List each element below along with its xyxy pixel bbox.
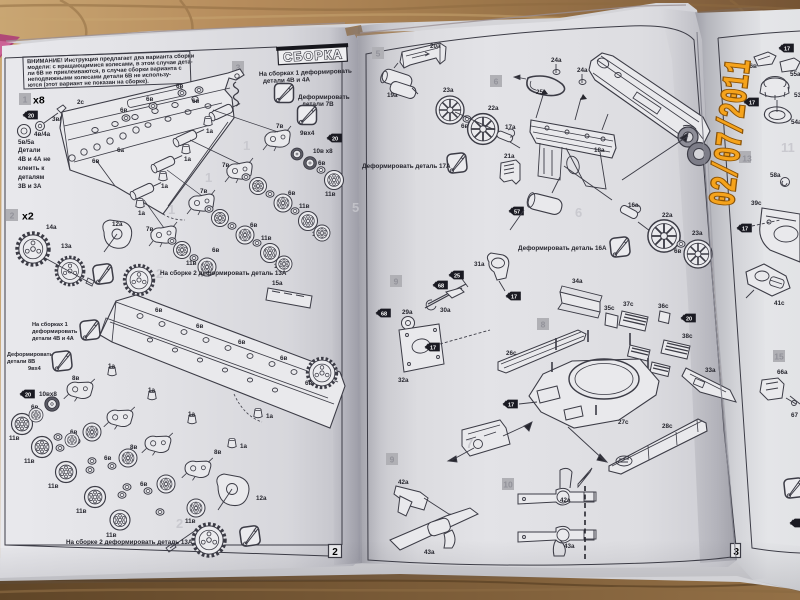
svg-text:15а: 15а (272, 280, 283, 287)
svg-text:20а: 20а (430, 43, 441, 50)
svg-text:4В и 4А не: 4В и 4А не (18, 156, 51, 163)
svg-text:11в: 11в (186, 260, 197, 267)
svg-text:2: 2 (10, 211, 15, 221)
svg-text:1а: 1а (108, 363, 116, 370)
svg-text:13а: 13а (61, 243, 72, 250)
svg-text:32а: 32а (398, 377, 409, 384)
svg-text:57: 57 (514, 210, 520, 216)
svg-text:15: 15 (774, 352, 784, 362)
svg-text:1а: 1а (148, 387, 156, 394)
svg-text:68: 68 (381, 312, 387, 318)
svg-text:42а: 42а (398, 479, 409, 486)
svg-text:1: 1 (205, 170, 212, 185)
svg-text:1а: 1а (240, 443, 248, 450)
svg-text:На сборках 1: На сборках 1 (32, 321, 68, 328)
svg-text:53: 53 (794, 92, 800, 99)
svg-text:17а: 17а (505, 124, 516, 131)
svg-text:12а: 12а (256, 495, 267, 502)
svg-text:43а: 43а (424, 549, 435, 556)
svg-text:6в: 6в (92, 158, 100, 165)
svg-text:2: 2 (332, 547, 338, 558)
svg-text:10: 10 (503, 480, 513, 490)
svg-text:6: 6 (494, 77, 499, 87)
svg-text:66а: 66а (777, 369, 788, 376)
svg-text:x8: x8 (33, 95, 45, 107)
svg-text:11в: 11в (261, 235, 272, 242)
svg-text:6в: 6в (196, 323, 204, 330)
svg-text:6в: 6в (238, 339, 246, 346)
svg-text:33а: 33а (705, 367, 716, 374)
svg-text:1: 1 (168, 202, 175, 217)
svg-text:детали 4В и 4А: детали 4В и 4А (32, 336, 74, 342)
svg-text:6в: 6в (192, 98, 200, 105)
svg-text:6в: 6в (250, 222, 258, 229)
svg-text:22а: 22а (662, 212, 673, 219)
svg-text:Детали: Детали (18, 147, 41, 154)
svg-text:19а: 19а (387, 92, 398, 99)
svg-text:38с: 38с (682, 333, 693, 340)
svg-text:11в: 11в (48, 483, 59, 490)
svg-text:6в: 6в (155, 307, 163, 314)
svg-text:11в: 11в (76, 508, 87, 515)
svg-text:11в: 11в (106, 532, 117, 539)
svg-text:6в: 6в (104, 455, 112, 462)
svg-text:9: 9 (390, 455, 395, 465)
svg-text:1а: 1а (188, 411, 196, 418)
svg-text:23а: 23а (443, 87, 454, 94)
svg-text:43а: 43а (564, 543, 575, 550)
svg-text:11в: 11в (299, 203, 310, 210)
svg-text:18а: 18а (594, 147, 605, 154)
svg-text:2: 2 (176, 516, 183, 531)
svg-text:58а: 58а (770, 172, 781, 179)
svg-text:6в: 6в (674, 248, 682, 255)
svg-text:12а: 12а (112, 221, 123, 228)
svg-text:6в: 6в (280, 355, 288, 362)
svg-text:2с: 2с (77, 99, 85, 106)
svg-text:24а: 24а (551, 57, 562, 64)
svg-text:7в: 7в (222, 162, 230, 169)
svg-text:Деформировать: Деформировать (298, 94, 350, 101)
svg-text:11в: 11в (24, 458, 35, 465)
svg-text:26с: 26с (506, 350, 517, 357)
svg-text:35с: 35с (604, 305, 615, 312)
svg-text:8в: 8в (214, 449, 222, 456)
svg-text:36с: 36с (658, 303, 669, 310)
svg-text:67: 67 (791, 412, 799, 419)
svg-text:29а: 29а (402, 309, 413, 316)
svg-text:20: 20 (25, 393, 31, 399)
svg-text:8: 8 (541, 320, 546, 330)
svg-text:6в: 6в (140, 481, 148, 488)
svg-text:55а: 55а (790, 71, 800, 78)
svg-text:20: 20 (28, 114, 34, 120)
svg-text:9вх4: 9вх4 (28, 366, 42, 372)
svg-text:детали 8В: детали 8В (7, 359, 35, 365)
svg-text:23а: 23а (692, 230, 703, 237)
svg-text:5: 5 (376, 49, 381, 59)
svg-text:17: 17 (508, 403, 514, 409)
svg-text:7в: 7в (200, 188, 208, 195)
svg-text:7в: 7в (146, 226, 154, 233)
svg-text:1а: 1а (161, 183, 169, 190)
svg-text:11в: 11в (185, 518, 196, 525)
svg-text:24а: 24а (577, 67, 588, 74)
svg-text:деталям: деталям (18, 174, 45, 181)
svg-text:11: 11 (781, 140, 795, 155)
svg-text:x2: x2 (22, 211, 34, 223)
svg-text:41с: 41с (774, 300, 785, 307)
svg-text:6а: 6а (117, 147, 125, 154)
svg-text:1а: 1а (206, 128, 214, 135)
svg-text:1: 1 (23, 95, 28, 105)
svg-text:11в: 11в (9, 435, 20, 442)
svg-text:5: 5 (352, 200, 359, 215)
svg-text:20: 20 (686, 317, 692, 323)
svg-text:Деформировать деталь 17А: Деформировать деталь 17А (362, 163, 451, 170)
svg-text:клеить к: клеить к (18, 165, 45, 172)
svg-text:68: 68 (438, 284, 444, 290)
svg-text:6в: 6в (318, 160, 326, 167)
svg-text:27с: 27с (618, 419, 629, 426)
svg-text:20: 20 (332, 137, 338, 143)
svg-text:На сборке 2 деформировать дета: На сборке 2 деформировать деталь 13А (66, 538, 193, 546)
svg-text:21а: 21а (504, 153, 515, 160)
svg-text:6в: 6в (212, 247, 220, 254)
svg-text:Деформировать деталь 16А: Деформировать деталь 16А (518, 245, 607, 252)
svg-text:На сборке 2 деформировать дета: На сборке 2 деформировать деталь 13А (160, 269, 287, 277)
svg-text:34а: 34а (572, 278, 583, 285)
svg-text:6в: 6в (120, 107, 128, 114)
svg-text:Деформировать: Деформировать (7, 351, 53, 358)
svg-text:6в: 6в (146, 96, 154, 103)
svg-text:6в: 6в (288, 190, 296, 197)
svg-text:1а: 1а (138, 210, 146, 217)
svg-text:39с: 39с (751, 200, 762, 207)
svg-text:17: 17 (742, 227, 748, 233)
svg-text:1а: 1а (266, 413, 274, 420)
svg-text:54а: 54а (791, 119, 800, 126)
svg-text:10в х8: 10в х8 (313, 148, 333, 155)
svg-text:14а: 14а (46, 224, 57, 231)
svg-text:17: 17 (511, 295, 517, 301)
svg-text:17: 17 (784, 47, 790, 53)
svg-text:6в: 6в (305, 380, 313, 387)
svg-text:4в/4а: 4в/4а (34, 131, 51, 138)
svg-text:5в/5а: 5в/5а (18, 139, 35, 146)
svg-text:31а: 31а (474, 261, 485, 268)
svg-text:1: 1 (243, 138, 250, 153)
svg-text:8в: 8в (72, 375, 80, 382)
svg-text:6в: 6в (176, 83, 184, 90)
svg-text:9: 9 (394, 277, 399, 287)
svg-text:22а: 22а (488, 105, 499, 112)
svg-text:30а: 30а (440, 307, 451, 314)
svg-text:9вх4: 9вх4 (300, 130, 315, 137)
svg-text:28с: 28с (662, 423, 673, 430)
svg-text:7в: 7в (276, 123, 284, 130)
svg-text:3В и 3А: 3В и 3А (18, 183, 42, 190)
svg-text:1а: 1а (184, 156, 192, 163)
svg-text:37с: 37с (623, 301, 634, 308)
svg-text:11в: 11в (325, 191, 336, 198)
svg-text:6: 6 (575, 205, 582, 220)
svg-text:42а: 42а (560, 497, 571, 504)
svg-text:25: 25 (454, 274, 460, 280)
svg-text:деформировать: деформировать (32, 328, 78, 335)
svg-text:17: 17 (430, 346, 436, 352)
